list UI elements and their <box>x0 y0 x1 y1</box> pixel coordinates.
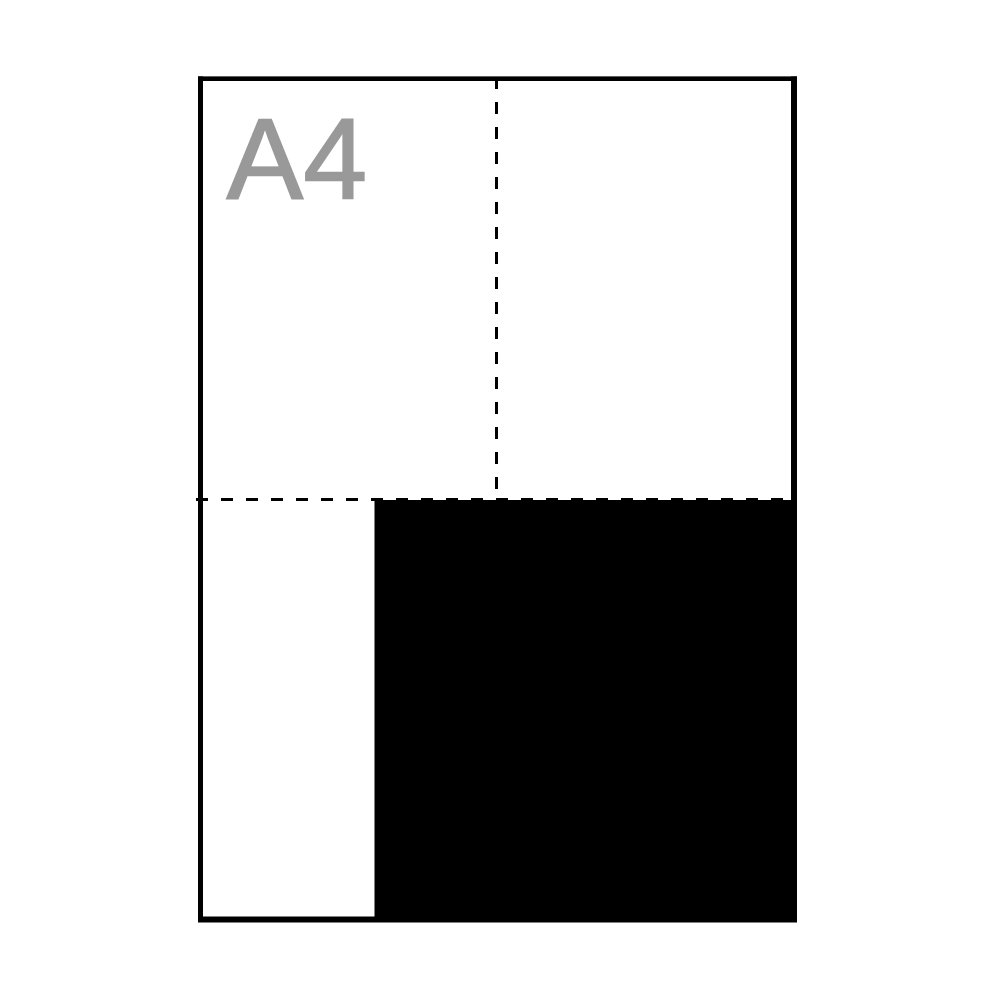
svg-text:A4: A4 <box>227 95 368 223</box>
